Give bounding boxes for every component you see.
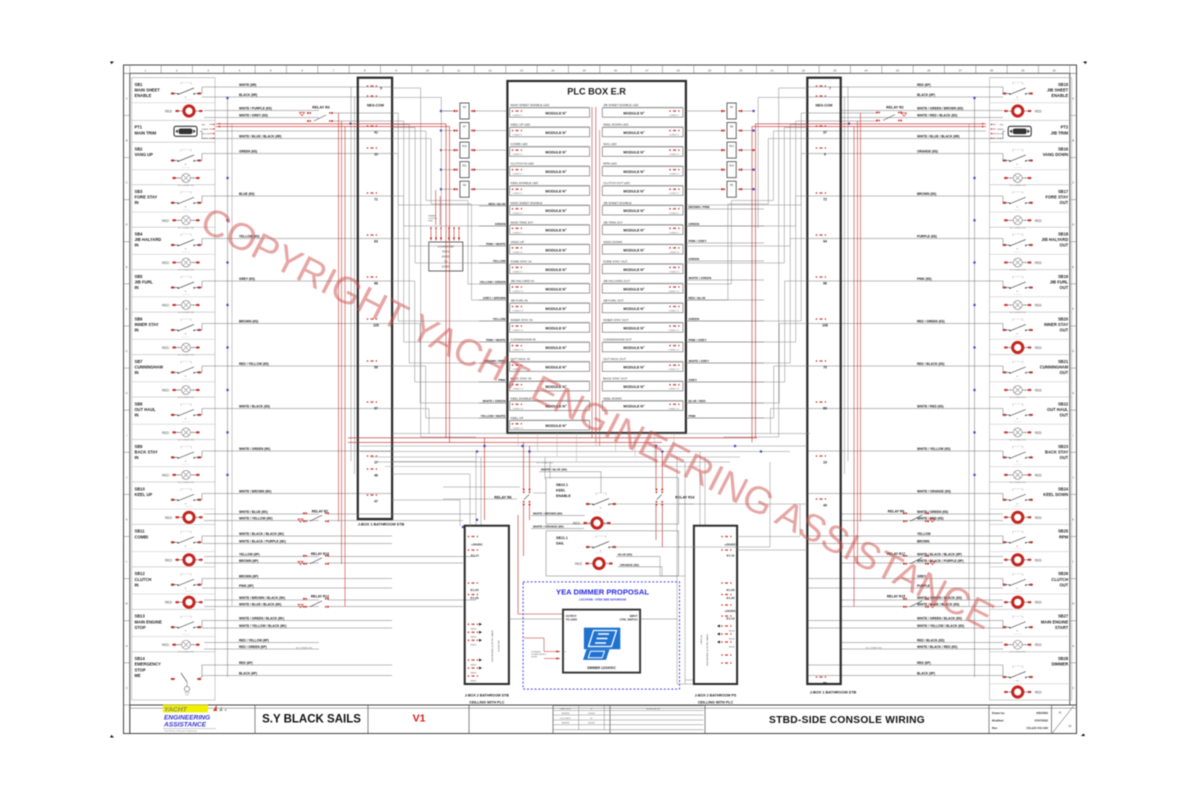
svg-text:CONNECT 11: CONNECT 11	[668, 311, 679, 313]
svg-text:BROWN / PINK: BROWN / PINK	[689, 205, 711, 209]
svg-text:RED: RED	[162, 473, 170, 477]
svg-text:22: 22	[802, 68, 806, 72]
svg-text:WHITE / RED / BLACK (6S): WHITE / RED / BLACK (6S)	[917, 113, 957, 117]
svg-text:H: H	[126, 391, 128, 395]
svg-text:NEG-COM: NEG-COM	[816, 104, 833, 108]
svg-text:JIB HALYARD: JIB HALYARD	[1041, 237, 1068, 242]
svg-text:KEEL UP: KEEL UP	[511, 416, 524, 420]
svg-text:23: 23	[833, 68, 837, 72]
svg-text:SB4: SB4	[135, 232, 144, 237]
svg-text:CONNECT 9: CONNECT 9	[669, 271, 679, 273]
svg-text:GREEN: GREEN	[997, 129, 1004, 131]
svg-text:BLACK (6P): BLACK (6P)	[239, 671, 257, 675]
svg-text:WHITE / GREEN: WHITE / GREEN	[483, 399, 506, 403]
svg-text:E1.35: E1.35	[727, 596, 735, 600]
svg-text:RED: RED	[162, 643, 170, 647]
svg-text:KEEL ENABLE LED: KEEL ENABLE LED	[511, 181, 540, 185]
svg-text:SB9: SB9	[135, 444, 144, 449]
svg-text:BLACK (6P): BLACK (6P)	[917, 671, 935, 675]
svg-text:V1: V1	[413, 713, 426, 725]
svg-text:16: 16	[614, 68, 618, 72]
svg-text:RELAY R9: RELAY R9	[888, 510, 905, 514]
svg-text:IN: IN	[135, 328, 139, 333]
svg-text:BLUE (6S): BLUE (6S)	[618, 553, 632, 557]
svg-text:RED: RED	[1035, 473, 1043, 477]
svg-text:RELAY R3: RELAY R3	[312, 106, 329, 110]
svg-text:18: 18	[677, 68, 681, 72]
svg-text:SB20: SB20	[1058, 316, 1069, 321]
svg-text:9: 9	[824, 153, 826, 157]
svg-text:SB27: SB27	[1058, 614, 1069, 619]
svg-text:REVIEW: REVIEW	[562, 713, 570, 715]
svg-text:OUT: OUT	[1060, 285, 1069, 290]
svg-text:N6060: N6060	[471, 664, 478, 666]
svg-text:E: E	[1072, 265, 1074, 269]
svg-text:WHITE / BROWN (6K): WHITE / BROWN (6K)	[533, 512, 562, 516]
svg-text:J-BOX 1 BATHROOM STB: J-BOX 1 BATHROOM STB	[810, 691, 857, 695]
svg-text:MODULE N°: MODULE N°	[545, 346, 567, 350]
svg-text:SB18: SB18	[1058, 232, 1069, 237]
svg-text:JIB HALYARD IN: JIB HALYARD IN	[511, 279, 534, 283]
svg-text:MODULE N°: MODULE N°	[545, 170, 567, 174]
svg-text:94: 94	[823, 240, 827, 244]
svg-text:PINK / GREY: PINK / GREY	[689, 239, 707, 243]
svg-text:SB12: SB12	[135, 571, 146, 576]
svg-text:MAIN SHEET ENABLE: MAIN SHEET ENABLE	[511, 201, 543, 205]
svg-text:PT1: PT1	[135, 125, 143, 130]
svg-text:49: 49	[823, 504, 827, 508]
svg-text:SB28: SB28	[1058, 656, 1069, 661]
svg-text:OUT: OUT	[1060, 370, 1069, 375]
svg-text:GREEN: GREEN	[689, 222, 700, 226]
svg-text:INPUT: INPUT	[630, 614, 638, 618]
svg-text:OUT HAUL: OUT HAUL	[1047, 407, 1069, 412]
svg-text:YELLOW: YELLOW	[917, 532, 931, 536]
svg-text:WHITE / BLACK / BLACK (6P): WHITE / BLACK / BLACK (6P)	[917, 552, 962, 556]
svg-text:RED / BLACK (6S): RED / BLACK (6S)	[917, 638, 944, 642]
svg-text:7: 7	[829, 87, 831, 91]
svg-text:WHITE / BLUE (6K): WHITE / BLUE (6K)	[541, 468, 567, 472]
svg-text:CUNNINGHAM: CUNNINGHAM	[135, 365, 164, 370]
svg-text:MAIN ENGINE: MAIN ENGINE	[135, 619, 163, 624]
svg-text:CONNECT 7: CONNECT 7	[513, 232, 523, 234]
svg-text:CONNECT 11: CONNECT 11	[513, 311, 524, 313]
svg-text:SB11.1: SB11.1	[556, 536, 568, 540]
svg-text:C: C	[1072, 181, 1074, 185]
svg-text:SB21: SB21	[1058, 359, 1069, 364]
svg-text:25: 25	[896, 68, 900, 72]
svg-text:CONNECT 16: CONNECT 16	[668, 408, 679, 410]
svg-text:SB23: SB23	[1058, 444, 1069, 449]
svg-text:JIB FURL: JIB FURL	[1050, 280, 1069, 285]
svg-text:GREEN: GREEN	[495, 222, 506, 226]
svg-text:IN: IN	[135, 370, 139, 375]
svg-text:RED: RED	[573, 522, 581, 526]
svg-text:WHITE / BROWN / BLACK (6K): WHITE / BROWN / BLACK (6K)	[239, 596, 285, 600]
svg-text:MODULE N°: MODULE N°	[623, 248, 645, 252]
svg-text:RED: RED	[162, 346, 170, 350]
svg-text:WHITE / ORANGE (6S): WHITE / ORANGE (6S)	[917, 489, 951, 493]
svg-text:RED: RED	[1035, 261, 1043, 265]
svg-text:SB13: SB13	[135, 614, 146, 619]
svg-text:RED: RED	[162, 219, 170, 223]
svg-text:63: 63	[374, 240, 378, 244]
svg-text:E1.11: E1.11	[471, 554, 479, 558]
svg-text:R10: R10	[462, 145, 467, 148]
svg-text:CEILLING WITH PLC: CEILLING WITH PLC	[698, 701, 734, 705]
svg-text:RED: RED	[1000, 124, 1005, 126]
svg-text:JIB SHEET ENABLE LED: JIB SHEET ENABLE LED	[603, 103, 639, 107]
svg-text:E1.26: E1.26	[471, 596, 479, 600]
svg-text:YACHT: YACHT	[164, 706, 188, 713]
svg-text:B: B	[126, 139, 128, 143]
svg-text:17: 17	[374, 461, 378, 465]
svg-text:FORE STAY OUT: FORE STAY OUT	[603, 259, 628, 263]
svg-text:MODULE N°: MODULE N°	[545, 326, 567, 330]
svg-text:N6060: N6060	[729, 630, 736, 632]
svg-text:WHITE / YELLOW (6K): WHITE / YELLOW (6K)	[239, 516, 273, 520]
svg-text:SB26: SB26	[1058, 571, 1069, 576]
svg-text:JIB SHEET: JIB SHEET	[1047, 88, 1069, 93]
svg-text:MODULE N°: MODULE N°	[545, 248, 567, 252]
svg-text:N6060: N6060	[471, 629, 478, 631]
svg-text:MODULE N°: MODULE N°	[623, 366, 645, 370]
svg-text:R13: R13	[729, 145, 734, 148]
svg-text:SAIL LED: SAIL LED	[603, 142, 617, 146]
svg-text:RED / BLUE: RED / BLUE	[488, 202, 505, 206]
svg-text:PWM: PWM	[428, 221, 433, 223]
svg-text:GREEN: GREEN	[689, 257, 700, 261]
svg-text:47: 47	[374, 500, 378, 504]
svg-text:CONNECT 2: CONNECT 2	[513, 135, 523, 137]
svg-text:E1.20: E1.20	[471, 588, 479, 592]
svg-text:SB1: SB1	[135, 82, 144, 87]
svg-text:RED (6P): RED (6P)	[239, 661, 253, 665]
svg-text:JIB FURL OUT: JIB FURL OUT	[603, 299, 624, 303]
svg-text:13: 13	[520, 68, 524, 72]
svg-text:Modified:: Modified:	[992, 719, 1004, 723]
svg-text:01/2022: 01/2022	[588, 713, 595, 715]
svg-text:99: 99	[374, 366, 378, 370]
svg-text:29: 29	[1021, 68, 1025, 72]
svg-text:JIB HALYARD OUT: JIB HALYARD OUT	[603, 279, 630, 283]
svg-text:DIMMER 12/24VDC: DIMMER 12/24VDC	[587, 666, 616, 670]
svg-text:WHITE / GREY (6S): WHITE / GREY (6S)	[239, 113, 268, 117]
svg-text:SB25: SB25	[1058, 529, 1069, 534]
svg-text:GREEN (6S): GREEN (6S)	[239, 149, 257, 153]
svg-text:OUT: OUT	[1060, 328, 1069, 333]
svg-text:RPM: RPM	[1059, 534, 1069, 539]
svg-text:BROWN: BROWN	[917, 539, 930, 543]
svg-text:MODULE N°: MODULE N°	[545, 268, 567, 272]
svg-text:GREEN: GREEN	[689, 317, 700, 321]
svg-text:NEG-COM: NEG-COM	[367, 104, 384, 108]
svg-text:IN: IN	[135, 413, 139, 418]
svg-text:START: START	[1055, 625, 1069, 630]
svg-text:C: C	[126, 181, 128, 185]
svg-text:A: A	[126, 96, 128, 100]
svg-text:MODULE N°: MODULE N°	[623, 209, 645, 213]
svg-text:69: 69	[823, 407, 827, 411]
svg-text:INNER STAY IN: INNER STAY IN	[511, 318, 533, 322]
svg-text:N6060: N6060	[471, 645, 478, 647]
svg-text:SB22: SB22	[1058, 401, 1069, 406]
svg-text:CUNNINGHAM OUT: CUNNINGHAM OUT	[603, 338, 632, 342]
svg-text:CLUTCH OUT LED: CLUTCH OUT LED	[603, 181, 631, 185]
svg-text:CONNECT 1: CONNECT 1	[513, 115, 523, 117]
svg-text:E: E	[126, 265, 128, 269]
svg-text:MODULE N°: MODULE N°	[623, 307, 645, 311]
svg-text:WHITE / RED (6S): WHITE / RED (6S)	[917, 404, 944, 408]
svg-text:JIB FURL IN: JIB FURL IN	[511, 299, 528, 303]
svg-text:YELLOW / GREEN: YELLOW / GREEN	[479, 280, 505, 284]
svg-text:PINK: PINK	[689, 414, 697, 418]
svg-text:27: 27	[959, 68, 963, 72]
svg-text:BLACK (6R): BLACK (6R)	[239, 93, 257, 97]
svg-text:N: N	[1072, 644, 1074, 648]
svg-text:RED: RED	[1035, 691, 1043, 695]
svg-text:IN: IN	[135, 455, 139, 460]
svg-text:STBD-SIDE CONSOLE WIRING: STBD-SIDE CONSOLE WIRING	[769, 715, 925, 726]
svg-text:CONNECT 1: CONNECT 1	[669, 115, 679, 117]
svg-text:70: 70	[823, 366, 827, 370]
svg-text:N°: N°	[590, 718, 592, 720]
svg-text:WHITE / GREEN / BLACK (6K): WHITE / GREEN / BLACK (6K)	[239, 616, 284, 620]
svg-text:JIB TRIM: JIB TRIM	[1051, 130, 1069, 135]
svg-text:OUT: OUT	[1060, 413, 1069, 418]
svg-text:RED: RED	[1035, 516, 1043, 520]
svg-text:PINK / GREY: PINK / GREY	[689, 338, 707, 342]
svg-text:SB2: SB2	[135, 147, 144, 152]
svg-text:CUNNINGHAM: CUNNINGHAM	[1040, 365, 1069, 370]
svg-text:CONNECT 10: CONNECT 10	[513, 291, 524, 293]
svg-text:SB6: SB6	[135, 316, 144, 321]
svg-text:CONNECT 13: CONNECT 13	[668, 350, 679, 352]
svg-text:REVIEW: REVIEW	[562, 723, 570, 725]
svg-text:J-BOX 2 BATHROOM PS: J-BOX 2 BATHROOM PS	[695, 694, 737, 698]
svg-text:YELLOW: YELLOW	[202, 134, 210, 136]
svg-text:VANG UP: VANG UP	[135, 152, 154, 157]
svg-text:RELAY R12: RELAY R12	[311, 595, 329, 599]
svg-text:RED: RED	[165, 110, 173, 114]
svg-text:WHITE / BLUE / BLACK (6R): WHITE / BLUE / BLACK (6R)	[917, 134, 960, 138]
svg-text:YELLOW / WHITE: YELLOW / WHITE	[481, 414, 506, 418]
svg-text:MODULE N°: MODULE N°	[623, 385, 645, 389]
svg-text:WHITE / GREEN (6S): WHITE / GREEN (6S)	[917, 510, 948, 514]
svg-text:NO CONNECTED: NO CONNECTED	[296, 647, 313, 649]
svg-text:37: 37	[823, 131, 827, 135]
svg-text:GREEN: GREEN	[202, 129, 209, 131]
svg-text:01: 01	[1059, 711, 1062, 715]
svg-text:IN: IN	[135, 243, 139, 248]
svg-text:INNER STAY: INNER STAY	[135, 322, 159, 327]
svg-text:CONNECT 9: CONNECT 9	[513, 271, 523, 273]
svg-text:MODULE N°: MODULE N°	[623, 131, 645, 135]
svg-text:CONNECT 4: CONNECT 4	[669, 174, 679, 176]
svg-text:02: 02	[1069, 724, 1072, 728]
svg-text:ENABLE: ENABLE	[556, 494, 571, 498]
svg-text:TO LEDS: TO LEDS	[566, 617, 577, 621]
svg-text:11: 11	[457, 68, 460, 72]
svg-text:RED: RED	[162, 304, 170, 308]
svg-text:14: 14	[551, 68, 555, 72]
svg-text:WHITE / GREEN / BROWN (6S): WHITE / GREEN / BROWN (6S)	[917, 106, 963, 110]
svg-text:41: 41	[374, 131, 378, 135]
svg-text:E1.12: E1.12	[727, 617, 735, 621]
svg-text:WHITE (6R): WHITE (6R)	[239, 83, 256, 87]
svg-text:WHITE / BLACK / BLACK (6K): WHITE / BLACK / BLACK (6K)	[239, 532, 284, 536]
svg-text:RED: RED	[1035, 601, 1043, 605]
svg-text:OUT: OUT	[1060, 243, 1069, 248]
svg-text:D: D	[126, 223, 128, 227]
svg-text:MODULE N°: MODULE N°	[623, 170, 645, 174]
svg-text:BROWN (6S): BROWN (6S)	[239, 319, 258, 323]
svg-text:WHITE / PURPLE (6S): WHITE / PURPLE (6S)	[239, 106, 272, 110]
svg-text:MODULE N°: MODULE N°	[623, 111, 645, 115]
svg-text:FROM: FROM	[531, 657, 537, 659]
svg-text:CUNNINGHAM IN: CUNNINGHAM IN	[511, 338, 536, 342]
svg-text:SB3: SB3	[135, 189, 144, 194]
svg-text:CONNECT 8: CONNECT 8	[513, 252, 523, 254]
svg-text:RED: RED	[1035, 643, 1043, 647]
svg-text:SB10: SB10	[135, 486, 146, 491]
svg-text:CTRL SWITCH: CTRL SWITCH	[620, 617, 638, 621]
svg-text:WHITE / BLUE (6K): WHITE / BLUE (6K)	[239, 510, 268, 514]
svg-text:D-SUB 25P: D-SUB 25P	[499, 640, 501, 652]
svg-text:RED (6P): RED (6P)	[917, 661, 931, 665]
svg-text:RED: RED	[1035, 431, 1043, 435]
svg-text:SUB-ENGINE 1) CNTRL CABLE: SUB-ENGINE 1) CNTRL CABLE	[706, 634, 709, 666]
svg-text:G: G	[126, 349, 128, 353]
svg-text:CONNECT 10: CONNECT 10	[668, 291, 679, 293]
svg-text:WHITE / BLACK (6S): WHITE / BLACK (6S)	[239, 404, 270, 408]
svg-text:RPM LED: RPM LED	[603, 162, 618, 166]
svg-text:OUT HAUL: OUT HAUL	[135, 407, 157, 412]
svg-text:Rev:: Rev:	[992, 726, 998, 730]
svg-text:MODULE N°: MODULE N°	[623, 268, 645, 272]
svg-text:+26VDC: +26VDC	[724, 542, 737, 546]
svg-text:S.Y BLACK SAILS: S.Y BLACK SAILS	[262, 714, 361, 726]
svg-text:NO CONNECTED: NO CONNECTED	[1010, 185, 1027, 187]
svg-text:ENGINEERING: ENGINEERING	[164, 714, 210, 721]
svg-text:ENABLE: ENABLE	[135, 93, 152, 98]
svg-text:RED / GREEN (6S): RED / GREEN (6S)	[917, 319, 945, 323]
svg-text:YELLOW (6P): YELLOW (6P)	[239, 552, 260, 556]
svg-text:FORE STAY: FORE STAY	[135, 195, 158, 200]
svg-text:SB8: SB8	[135, 401, 144, 406]
svg-text:MODULE N°: MODULE N°	[545, 229, 567, 233]
svg-text:19: 19	[823, 461, 827, 465]
svg-text:CHAPTER N°: CHAPTER N°	[560, 707, 572, 710]
svg-text:CEILLING WITH PLC: CEILLING WITH PLC	[469, 701, 505, 705]
svg-text:CONNECT 14: CONNECT 14	[668, 369, 679, 371]
svg-text:COMBI: COMBI	[135, 534, 149, 539]
svg-text:BROWN (6P): BROWN (6P)	[239, 574, 258, 578]
svg-text:MODULE N°: MODULE N°	[623, 326, 645, 330]
svg-text:NO CONNECTED: NO CONNECTED	[537, 463, 554, 465]
svg-text:EMERGENCY: EMERGENCY	[135, 662, 162, 667]
svg-text:WHITE / BLUE / BLACK (6R): WHITE / BLUE / BLACK (6R)	[239, 134, 282, 138]
svg-text:SB11: SB11	[135, 529, 146, 534]
svg-text:SB17: SB17	[1058, 189, 1069, 194]
svg-text:RED: RED	[1035, 219, 1043, 223]
svg-text:21: 21	[771, 68, 775, 72]
svg-text:CONNECT 2: CONNECT 2	[669, 135, 679, 137]
svg-text:108: 108	[822, 324, 828, 328]
svg-text:MODULE N°: MODULE N°	[623, 405, 645, 409]
svg-text:STOP: STOP	[135, 625, 146, 630]
svg-text:CONNECT 3: CONNECT 3	[513, 154, 523, 156]
svg-text:VANG DOWN: VANG DOWN	[603, 240, 622, 244]
svg-text:D: D	[1072, 223, 1074, 227]
svg-text:SB16: SB16	[1058, 147, 1069, 152]
svg-text:RED / BLUE: RED / BLUE	[689, 296, 706, 300]
svg-text:RED: RED	[165, 516, 173, 520]
svg-text:INNER STAY OUT: INNER STAY OUT	[603, 318, 629, 322]
svg-text:SUB-ENGINE 1) CNTRL CABLE: SUB-ENGINE 1) CNTRL CABLE	[491, 630, 494, 662]
svg-text:LOCATION : STBD SIDE BATHROOM: LOCATION : STBD SIDE BATHROOM	[579, 598, 627, 602]
svg-text:10: 10	[426, 68, 430, 72]
svg-text:OUTPUT: OUTPUT	[566, 614, 577, 618]
svg-text:MODULE N°: MODULE N°	[545, 131, 567, 135]
svg-text:J-BOX 2 BATHROOM STB: J-BOX 2 BATHROOM STB	[465, 694, 509, 698]
svg-text:NO CONNECTED: NO CONNECTED	[1010, 397, 1027, 399]
svg-text:RED: RED	[162, 261, 170, 265]
svg-text:MODULE N°: MODULE N°	[545, 209, 567, 213]
svg-text:MODULE N°: MODULE N°	[623, 229, 645, 233]
svg-text:SB10.1: SB10.1	[556, 483, 568, 487]
svg-text:N6060: N6060	[729, 638, 736, 640]
svg-text:YELLOW: YELLOW	[493, 259, 506, 263]
svg-text:E1.20: E1.20	[727, 588, 735, 592]
svg-text:01/2022: 01/2022	[588, 723, 595, 725]
svg-text:CLUTCH: CLUTCH	[1051, 577, 1068, 582]
svg-text:VANG UP: VANG UP	[511, 240, 525, 244]
svg-text:GREY / BROWN: GREY / BROWN	[483, 296, 506, 300]
svg-text:BROWN (6P): BROWN (6P)	[239, 559, 258, 563]
svg-text:FORE STAY: FORE STAY	[1045, 195, 1068, 200]
svg-text:PT2: PT2	[1061, 125, 1069, 130]
svg-text:WHITE / YELLOW / BLACK (6K): WHITE / YELLOW / BLACK (6K)	[239, 624, 286, 628]
svg-text:CLUTCH: CLUTCH	[135, 577, 152, 582]
svg-text:E1.11: E1.11	[727, 554, 735, 558]
svg-text:RELAY R10: RELAY R10	[311, 552, 329, 556]
svg-text:ENABLE: ENABLE	[1051, 93, 1068, 98]
svg-text:VANG DOWN: VANG DOWN	[1043, 152, 1069, 157]
svg-text:PLC BOX E.R: PLC BOX E.R	[567, 87, 626, 97]
svg-text:RED: RED	[162, 389, 170, 393]
svg-text:CONNECT 7: CONNECT 7	[669, 232, 679, 234]
svg-text:15: 15	[583, 68, 587, 72]
svg-text:NO CONNECTED: NO CONNECTED	[178, 185, 195, 187]
svg-text:JIB TRIM JOY: JIB TRIM JOY	[603, 220, 623, 224]
svg-text:RED / YELLOW (6S): RED / YELLOW (6S)	[239, 362, 269, 366]
svg-text:SAIL: SAIL	[556, 542, 565, 546]
svg-text:YEA DIMMER PROPOSAL: YEA DIMMER PROPOSAL	[556, 587, 649, 596]
svg-text:MODULE N°: MODULE N°	[623, 287, 645, 291]
svg-text:N°: N°	[590, 708, 592, 710]
svg-text:H: H	[1072, 391, 1074, 395]
svg-text:BROWN (6S): BROWN (6S)	[917, 192, 936, 196]
svg-text:96: 96	[823, 282, 827, 286]
svg-text:KEEL DOWN: KEEL DOWN	[1043, 492, 1068, 497]
svg-text:K: K	[126, 518, 128, 522]
svg-text:KEEL UP: KEEL UP	[135, 492, 153, 497]
svg-text:BLACK (6P): BLACK (6P)	[917, 93, 935, 97]
svg-text:CONNECT 4: CONNECT 4	[513, 174, 523, 176]
svg-text:MODULE N°: MODULE N°	[545, 287, 567, 291]
svg-text:07/07/2022: 07/07/2022	[1035, 719, 1049, 723]
